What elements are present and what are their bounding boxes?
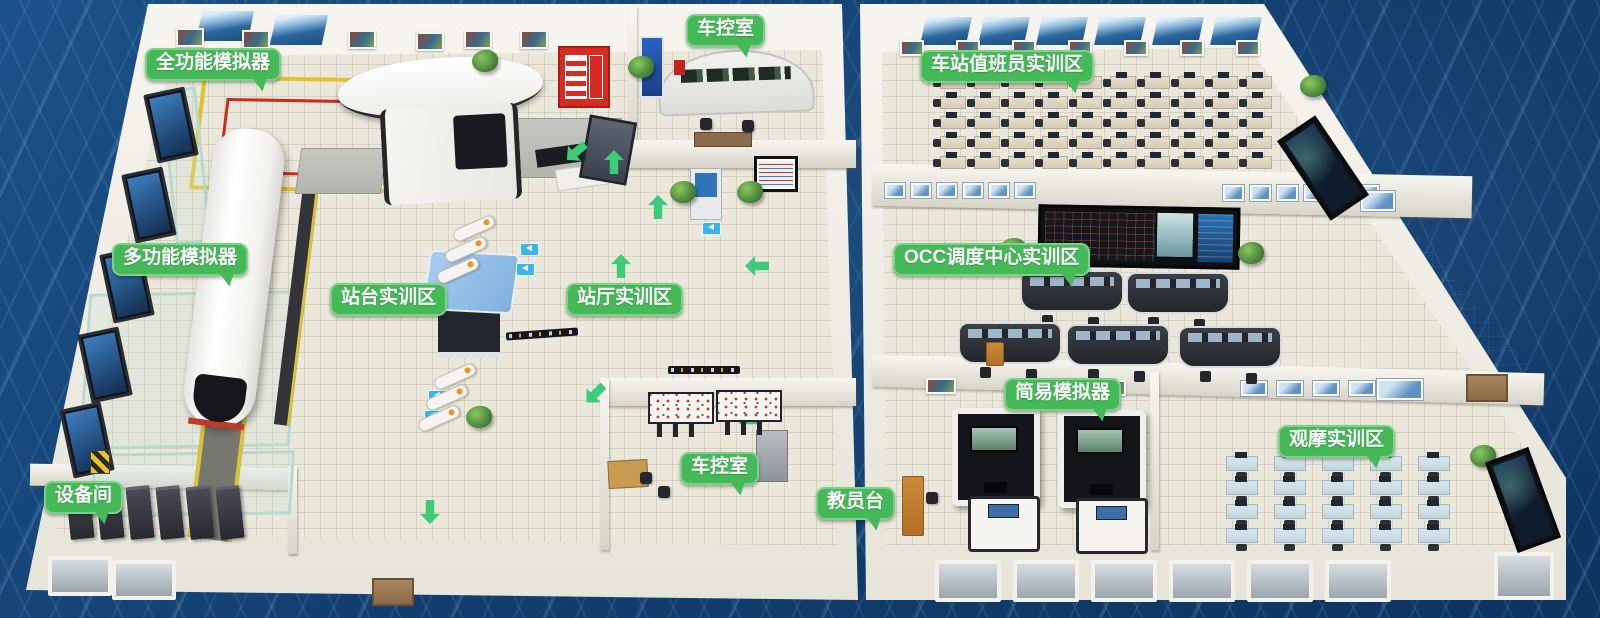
workstation-desk: [1226, 528, 1258, 543]
label-equipment-room: 设备间: [44, 481, 123, 514]
workstation-desk: [1110, 156, 1136, 169]
workstation-desk: [1178, 76, 1204, 89]
workstation-desk: [1322, 528, 1354, 543]
plant: [1300, 75, 1326, 97]
chair: [640, 472, 652, 484]
workstation-desk: [1008, 136, 1034, 149]
obs-wall-poster: [1276, 380, 1304, 397]
workstation-desk: [1418, 456, 1450, 471]
workstation-desk: [1212, 116, 1238, 129]
workstation-desk: [1322, 456, 1354, 471]
label-vehicle-control-room-bottom: 车控室: [680, 452, 759, 485]
workstation-desk: [1212, 76, 1238, 89]
workstation-desk: [1418, 504, 1450, 519]
wall-photo: [1124, 40, 1148, 56]
workstation-desk: [1212, 156, 1238, 169]
wall-photo: [416, 32, 444, 51]
hazard-sign: [90, 450, 110, 474]
flow-arrow-icon: [745, 256, 769, 276]
workstation-desk: [1226, 504, 1258, 519]
occ-wall-poster: [1014, 182, 1036, 199]
chair: [742, 120, 754, 132]
ibp-panel: [648, 392, 714, 424]
plant: [670, 181, 696, 203]
workstation-desk: [1226, 480, 1258, 495]
workstation-desk: [1370, 528, 1402, 543]
wall-screen: [121, 166, 177, 243]
wall-photo: [520, 30, 548, 49]
simulator-booth: [1076, 498, 1148, 554]
exterior-window: [112, 560, 176, 600]
workstation-desk: [1042, 96, 1068, 109]
workstation-desk: [1008, 116, 1034, 129]
exterior-window: [1091, 560, 1157, 602]
flow-arrow-icon: [420, 500, 440, 524]
wall-photo: [348, 30, 376, 49]
chair: [700, 118, 712, 130]
workstation-desk: [1110, 76, 1136, 89]
direction-sign-icon: [516, 263, 535, 276]
exterior-window: [48, 556, 112, 596]
wall-photo: [242, 30, 270, 49]
dispatch-console: [1178, 326, 1282, 368]
window: [266, 12, 332, 48]
workstation-desk: [1274, 480, 1306, 495]
workstation-desk: [940, 116, 966, 129]
occ-wall-poster: [936, 182, 958, 199]
wall-photo: [926, 378, 956, 394]
workstation-desk: [1274, 456, 1306, 471]
workstation-desk: [1076, 96, 1102, 109]
workstation-desk: [974, 136, 1000, 149]
workstation-desk: [1370, 504, 1402, 519]
wall-screen: [143, 86, 199, 163]
obs-wall-poster: [1376, 378, 1424, 401]
dispatch-console: [958, 322, 1062, 364]
wall-photo: [176, 28, 204, 47]
server-rack: [215, 485, 244, 540]
label-instructor-station: 教员台: [816, 487, 895, 520]
flow-arrow-icon: [611, 254, 631, 278]
workstation-desk: [1110, 116, 1136, 129]
instructor-desk: [902, 476, 924, 536]
label-observation-area: 观摩实训区: [1278, 425, 1395, 458]
workstation-desk: [1212, 136, 1238, 149]
workstation-desk: [1322, 480, 1354, 495]
occ-wall-poster: [884, 182, 906, 199]
wall-photo: [1236, 40, 1260, 56]
exterior-window: [1247, 560, 1313, 602]
wall-photo: [464, 30, 492, 49]
simulator-booth: [968, 496, 1040, 552]
flow-arrow-icon: [579, 378, 610, 409]
label-station-hall-training-area: 站厅实训区: [566, 283, 683, 316]
exterior-window: [1325, 560, 1391, 602]
server-rack: [125, 485, 154, 540]
workstation-desk: [974, 96, 1000, 109]
label-station-attendant-area: 车站值班员实训区: [920, 50, 1094, 83]
chair: [926, 492, 938, 504]
workstation-desk: [1246, 136, 1272, 149]
simulator-booth: [1058, 410, 1146, 508]
exterior-window: [1013, 560, 1079, 602]
workstation-desk: [1212, 96, 1238, 109]
podium: [986, 342, 1004, 366]
occ-wall-poster: [1276, 184, 1299, 202]
workstation-desk: [1226, 456, 1258, 471]
occ-wall-poster: [988, 182, 1010, 199]
pis-sign: [506, 327, 578, 340]
workstation-desk: [974, 116, 1000, 129]
workstation-desk: [1178, 136, 1204, 149]
workstation-desk: [1178, 116, 1204, 129]
workstation-desk: [1110, 136, 1136, 149]
exterior-window: [1169, 560, 1235, 602]
server-rack: [185, 485, 214, 540]
workstation-desk: [1418, 528, 1450, 543]
label-vehicle-control-room-top: 车控室: [686, 14, 765, 47]
occ-wall-poster: [910, 182, 932, 199]
workstation-desk: [1178, 156, 1204, 169]
dispatch-console: [1126, 272, 1230, 314]
plant: [1238, 242, 1264, 264]
workstation-desk: [1246, 116, 1272, 129]
workstation-desk: [1144, 156, 1170, 169]
workstation-desk: [1144, 96, 1170, 109]
workstation-desk: [1246, 96, 1272, 109]
plant: [628, 56, 654, 78]
door: [1466, 374, 1508, 402]
obs-wall-poster: [1348, 380, 1376, 397]
label-occ-dispatch-area: OCC调度中心实训区: [893, 243, 1090, 276]
workstation-desk: [1246, 156, 1272, 169]
workstation-desk: [940, 156, 966, 169]
exterior-window: [935, 560, 1001, 602]
workstation-desk: [1076, 156, 1102, 169]
workstation-desk: [1076, 116, 1102, 129]
workstation-desk: [1246, 76, 1272, 89]
dispatch-console: [1066, 324, 1170, 366]
direction-sign-icon: [520, 243, 539, 256]
plant: [472, 50, 498, 72]
workstation-desk: [1110, 96, 1136, 109]
plant: [737, 181, 763, 203]
obs-wall-poster: [1240, 380, 1268, 397]
chair: [658, 486, 670, 498]
workstation-desk: [1370, 480, 1402, 495]
workstation-desk: [1322, 504, 1354, 519]
ibp-panel: [716, 390, 782, 422]
workstation-desk: [1178, 96, 1204, 109]
flow-arrow-icon: [560, 137, 591, 168]
workstation-desk: [1008, 156, 1034, 169]
occ-wall-poster: [1249, 184, 1272, 202]
workstation-desk: [940, 96, 966, 109]
display-screen: [1485, 447, 1561, 553]
simulator-booth: [952, 408, 1040, 506]
wall-screen: [77, 326, 133, 403]
flow-arrow-icon: [604, 150, 624, 174]
workstation-desk: [974, 156, 1000, 169]
workstation-desk: [1144, 76, 1170, 89]
server-rack: [155, 485, 184, 540]
door: [372, 578, 414, 606]
workstation-desk: [940, 136, 966, 149]
pis-sign: [668, 366, 740, 374]
wall-photo: [1180, 40, 1204, 56]
workstation-desk: [1008, 96, 1034, 109]
workstation-desk: [1042, 156, 1068, 169]
workstation-desk: [1042, 116, 1068, 129]
occ-wall-poster: [962, 182, 984, 199]
exterior-window: [1494, 552, 1554, 600]
label-platform-training-area: 站台实训区: [330, 283, 447, 316]
training-base-floorplan: 客服中心 全功能模拟器 车控室 车站值班员实训区 多功能模拟器 站台实训区 站厅…: [0, 0, 1600, 618]
plant: [466, 406, 492, 428]
obs-wall-poster: [1312, 380, 1340, 397]
flow-arrow-icon: [648, 195, 668, 219]
workstation-desk: [1418, 480, 1450, 495]
workstation-desk: [1274, 504, 1306, 519]
label-full-function-simulator: 全功能模拟器: [145, 48, 281, 81]
workstation-desk: [1144, 136, 1170, 149]
label-simple-simulator: 简易模拟器: [1004, 378, 1121, 411]
direction-sign-icon: [702, 222, 721, 235]
display-screen: [1277, 115, 1369, 220]
workstation-desk: [1076, 136, 1102, 149]
label-multi-function-simulator: 多功能模拟器: [112, 243, 248, 276]
workstation-desk: [1144, 116, 1170, 129]
workstation-desk: [1042, 136, 1068, 149]
workstation-desk: [1274, 528, 1306, 543]
occ-wall-poster: [1222, 184, 1245, 202]
